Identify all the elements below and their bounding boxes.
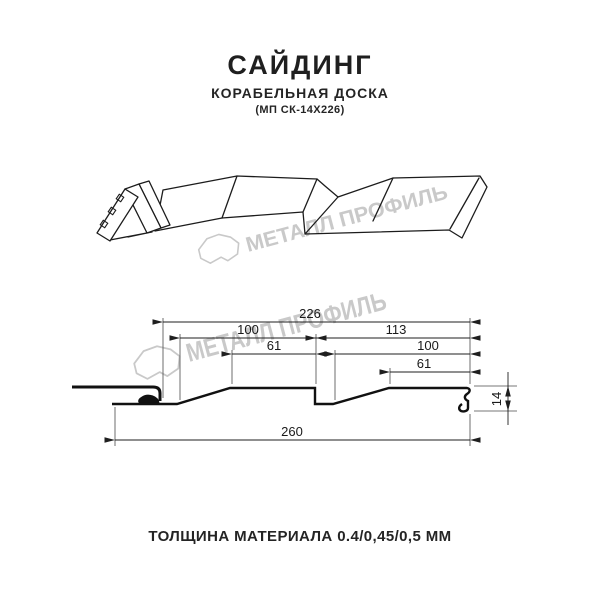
dimension-lines — [115, 322, 508, 440]
thickness-note: ТОЛЩИНА МАТЕРИАЛА 0.4/0,45/0,5 ММ — [0, 528, 600, 545]
dim-label-right-panel: 113 — [386, 322, 407, 337]
profile-section-line — [112, 388, 470, 411]
lock-hook — [139, 395, 159, 404]
extension-lines — [115, 318, 517, 446]
bottom-lip-edges — [110, 232, 152, 240]
dim-label-profile-height: 14 — [489, 392, 504, 406]
technical-drawing-canvas: МЕТАЛЛ ПРОФИЛЬ МЕТАЛЛ ПРОФИЛЬ — [0, 0, 600, 600]
dim-label-left-panel: 100 — [237, 322, 259, 337]
dim-label-module-width: 226 — [299, 306, 321, 321]
dim-label-right-inner: 100 — [417, 338, 439, 353]
dim-label-right-flat: 61 — [417, 356, 431, 371]
dim-label-left-flat: 61 — [267, 338, 281, 353]
product-drawing-page: САЙДИНГ КОРАБЕЛЬНАЯ ДОСКА (МП СК-14Х226)… — [0, 0, 600, 600]
profile-outline — [72, 387, 470, 411]
dim-label-total-width: 260 — [281, 424, 303, 439]
metal-profil-logo-icon — [132, 343, 182, 380]
watermark-text: МЕТАЛЛ ПРОФИЛЬ — [183, 286, 390, 368]
watermark-text: МЕТАЛЛ ПРОФИЛЬ — [243, 181, 450, 257]
watermark-bottom: МЕТАЛЛ ПРОФИЛЬ — [132, 286, 389, 381]
metal-profil-logo-icon — [197, 232, 241, 265]
watermark-top: МЕТАЛЛ ПРОФИЛЬ — [197, 181, 450, 265]
